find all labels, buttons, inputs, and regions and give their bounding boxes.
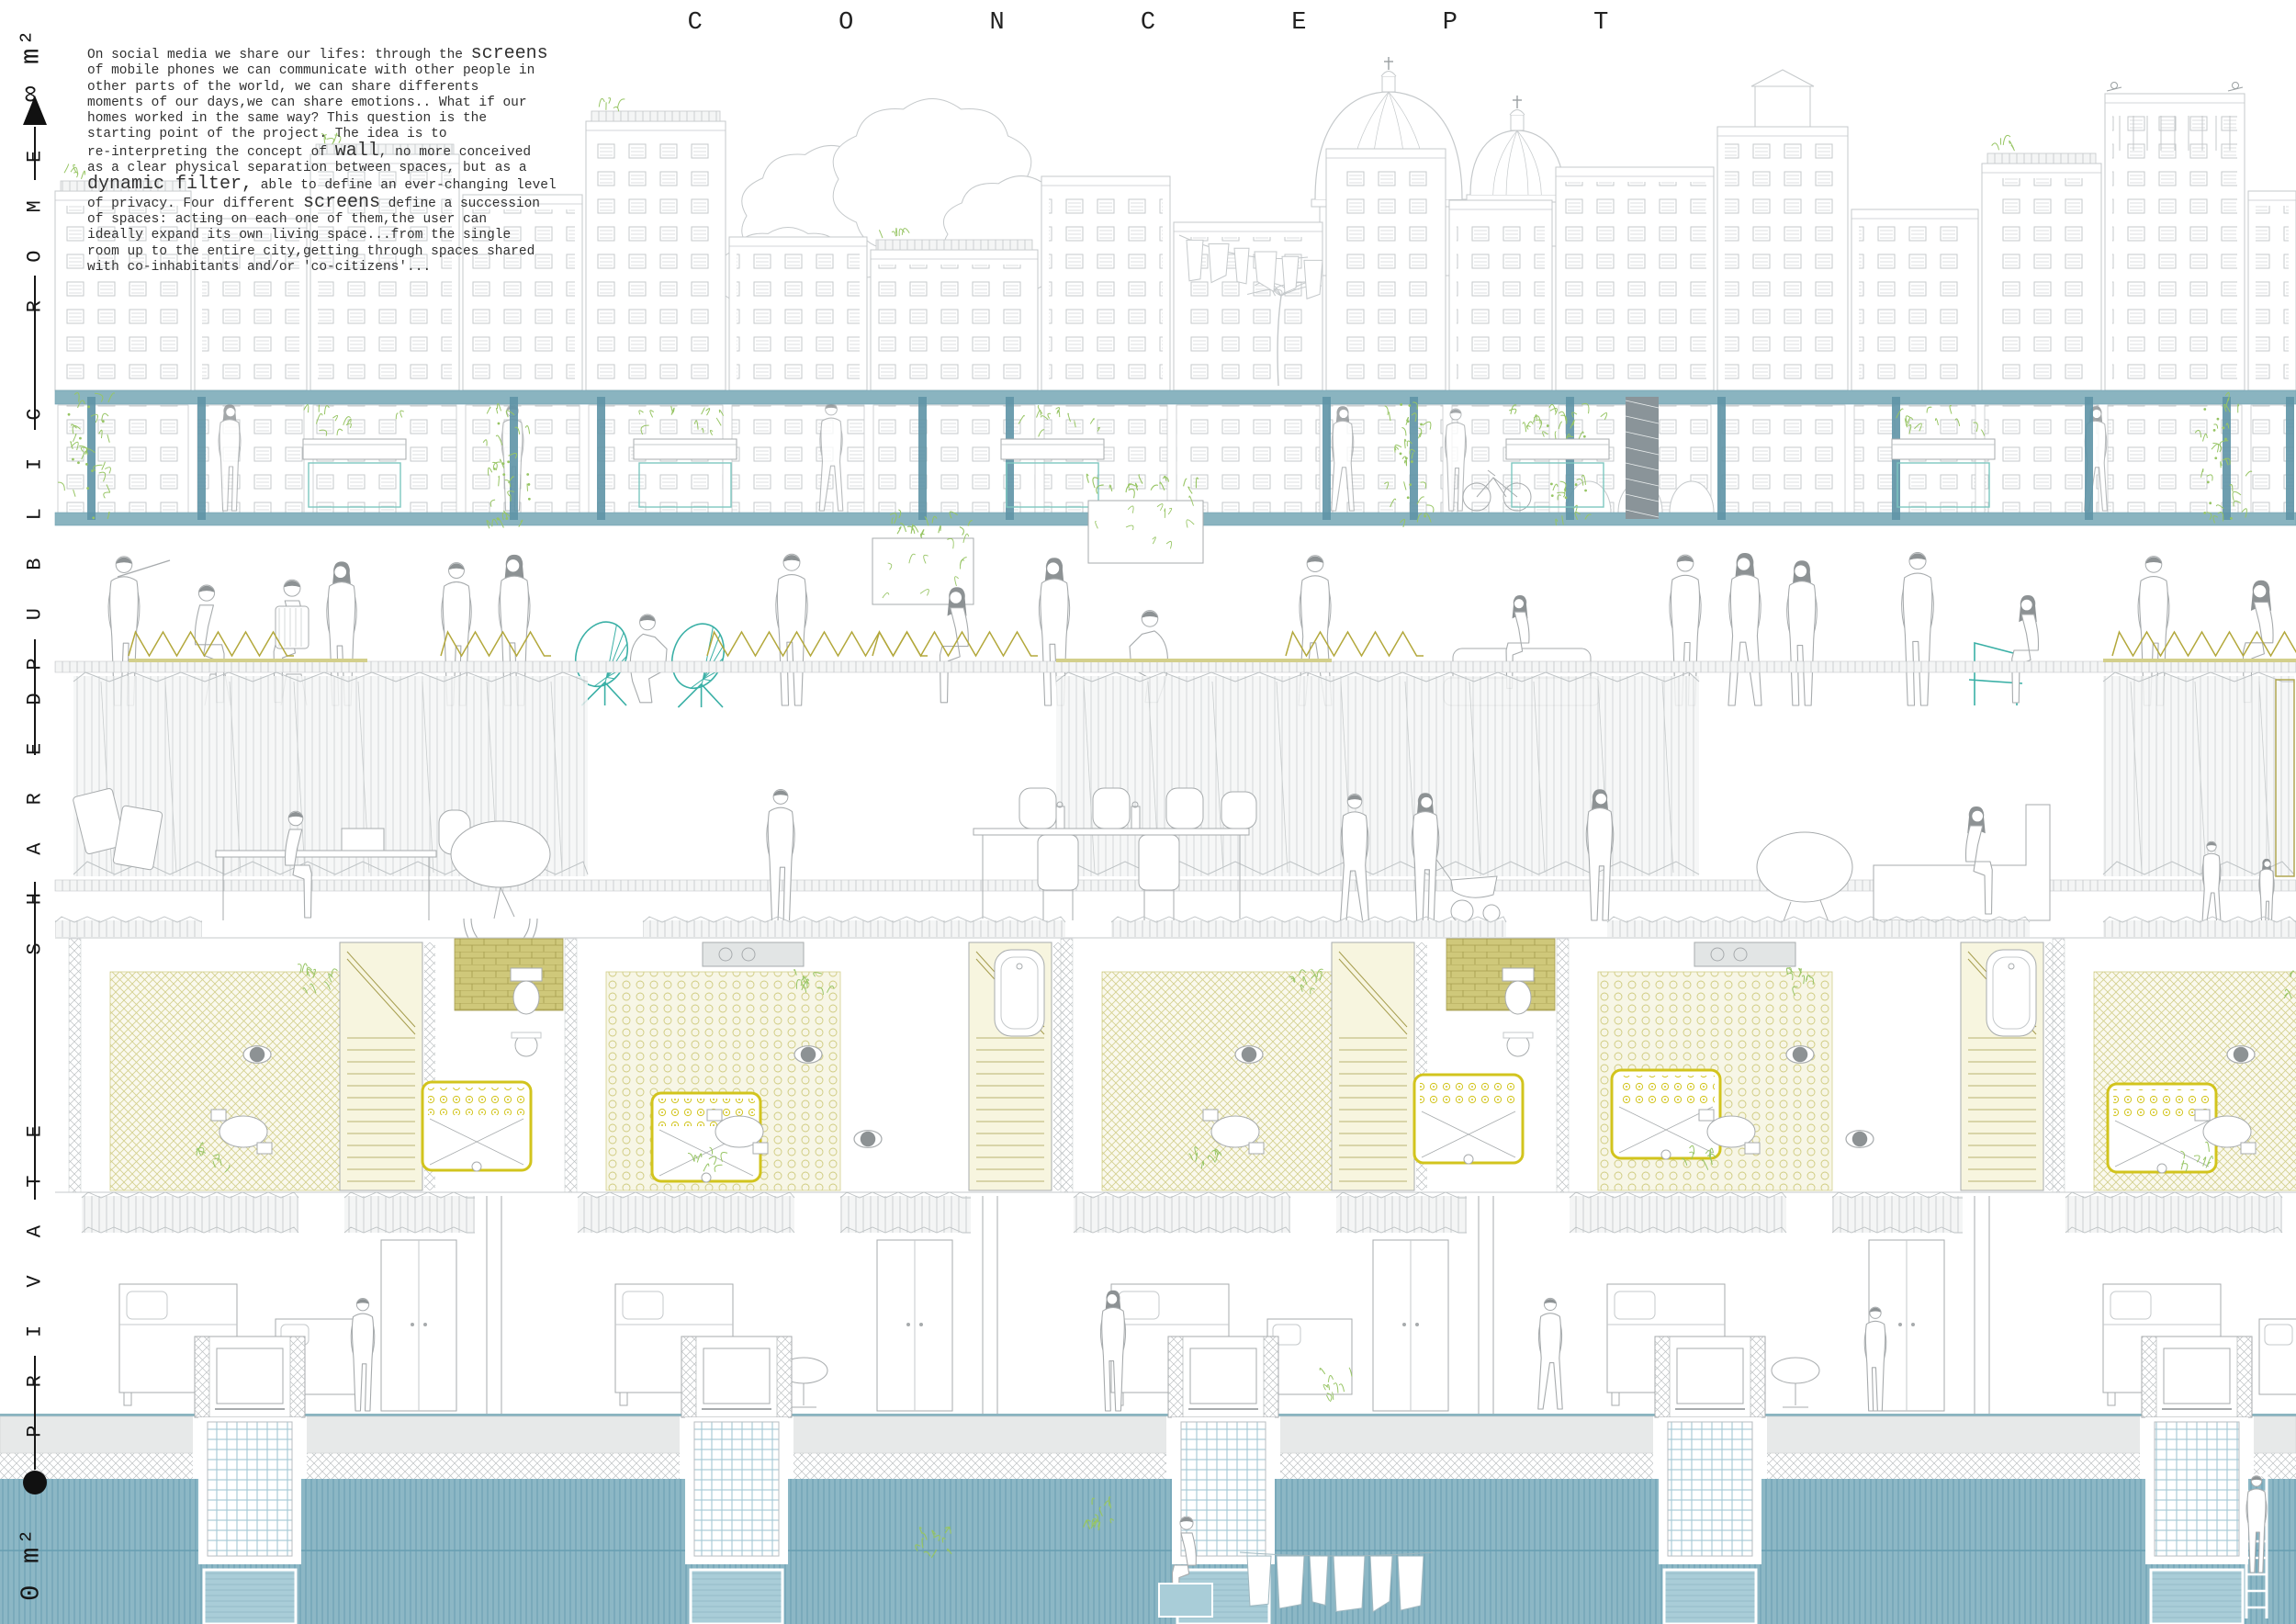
- page-title: C O N C E P T: [688, 9, 1670, 37]
- statement-text: screens: [303, 192, 380, 213]
- shared-level-band: [55, 659, 2296, 959]
- concept-statement: On social media we share our lifes: thro…: [87, 46, 638, 276]
- figure: [1902, 553, 1934, 705]
- figure: [2012, 595, 2039, 703]
- concept-board: C O N C E P T On social media we share o…: [0, 0, 2296, 1624]
- axis-zero-label: 0 m²: [17, 1526, 47, 1601]
- axis-origin-dot-icon: [23, 1471, 47, 1494]
- figure: [1787, 560, 1818, 705]
- figure: [243, 1046, 271, 1064]
- statement-text: wall: [335, 141, 379, 162]
- figure: [1538, 1298, 1562, 1409]
- figure: [630, 615, 667, 703]
- statement-text: dynamic filter,: [87, 174, 253, 195]
- figure: [767, 790, 794, 923]
- figure: [351, 1299, 375, 1411]
- statement-text: On social media we share our lifes: thro…: [87, 48, 471, 62]
- axis-infinity-label: ∞ m²: [17, 27, 47, 102]
- statement-text: screens: [471, 43, 548, 64]
- axis-line: [34, 1356, 36, 1470]
- private-plan-band: [55, 938, 2296, 1192]
- figure: [1846, 1131, 1874, 1148]
- axis-up-arrow-icon: [23, 96, 47, 125]
- figure: [1235, 1046, 1263, 1064]
- figure: [1786, 1046, 1814, 1064]
- figure: [854, 1131, 882, 1148]
- axis-public-label: P U B L I C: [24, 395, 47, 670]
- figure: [2227, 1046, 2255, 1064]
- figure: [794, 1046, 822, 1064]
- figure: [1728, 553, 1761, 705]
- figure: [776, 554, 807, 705]
